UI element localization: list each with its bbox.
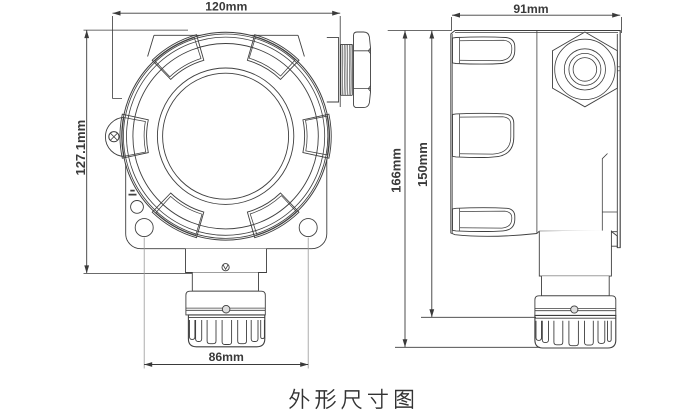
svg-text:150mm: 150mm <box>415 142 430 187</box>
svg-text:91mm: 91mm <box>513 2 548 16</box>
svg-text:86mm: 86mm <box>209 350 244 364</box>
svg-text:120mm: 120mm <box>205 0 247 14</box>
svg-text:127.1mm: 127.1mm <box>73 120 88 176</box>
svg-text:166mm: 166mm <box>388 148 403 193</box>
